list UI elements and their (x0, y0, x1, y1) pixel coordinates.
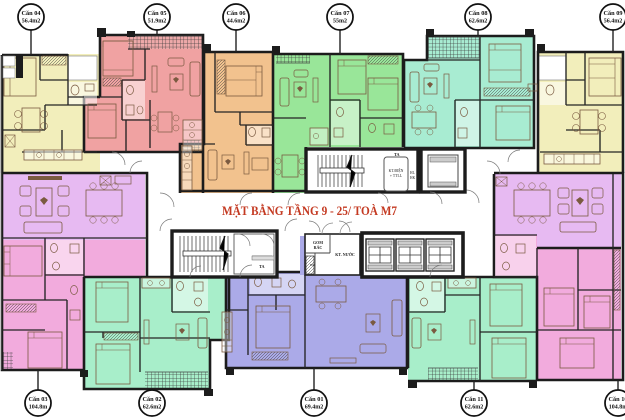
svg-text:+ TTLL: + TTLL (390, 174, 403, 178)
svg-text:Căn 11: Căn 11 (465, 396, 484, 403)
svg-text:HL: HL (410, 171, 415, 175)
svg-text:TA: TA (259, 264, 265, 269)
svg-text:Căn 01: Căn 01 (304, 396, 323, 403)
svg-text:56.4m2: 56.4m2 (604, 19, 623, 25)
svg-text:Căn 02: Căn 02 (142, 396, 161, 403)
svg-text:Căn 09: Căn 09 (603, 10, 622, 17)
svg-text:Căn 10: Căn 10 (608, 396, 625, 403)
svg-text:104.8m: 104.8m (29, 405, 48, 411)
svg-text:HM: HM (310, 263, 315, 267)
svg-text:62.6m2: 62.6m2 (465, 405, 484, 411)
svg-text:Căn 08: Căn 08 (468, 10, 487, 17)
svg-text:44.6m2: 44.6m2 (227, 19, 246, 25)
svg-text:55m2: 55m2 (333, 19, 347, 25)
svg-text:62.6m2: 62.6m2 (143, 405, 162, 411)
svg-text:Căn 05: Căn 05 (147, 10, 166, 17)
svg-text:51.9m2: 51.9m2 (148, 19, 167, 25)
svg-text:Căn 03: Căn 03 (28, 396, 47, 403)
svg-text:69.4m2: 69.4m2 (305, 405, 324, 411)
svg-text:TA: TA (394, 152, 400, 157)
svg-text:104.8m: 104.8m (609, 405, 625, 411)
svg-text:HK: HK (410, 176, 416, 180)
svg-text:56.4m2: 56.4m2 (22, 19, 41, 25)
svg-text:Căn 04: Căn 04 (21, 10, 41, 17)
svg-text:Căn 06: Căn 06 (226, 10, 245, 17)
svg-text:62.6m2: 62.6m2 (469, 19, 488, 25)
svg-text:KT. NƯỚC: KT. NƯỚC (335, 252, 355, 257)
svg-text:Căn 07: Căn 07 (330, 10, 349, 17)
svg-text:RÁC: RÁC (314, 245, 323, 250)
svg-text:MẶT BẰNG TẦNG 9 - 25/ TOÀ M7: MẶT BẰNG TẦNG 9 - 25/ TOÀ M7 (222, 203, 397, 218)
svg-text:KT.ĐIỆN: KT.ĐIỆN (389, 168, 404, 173)
